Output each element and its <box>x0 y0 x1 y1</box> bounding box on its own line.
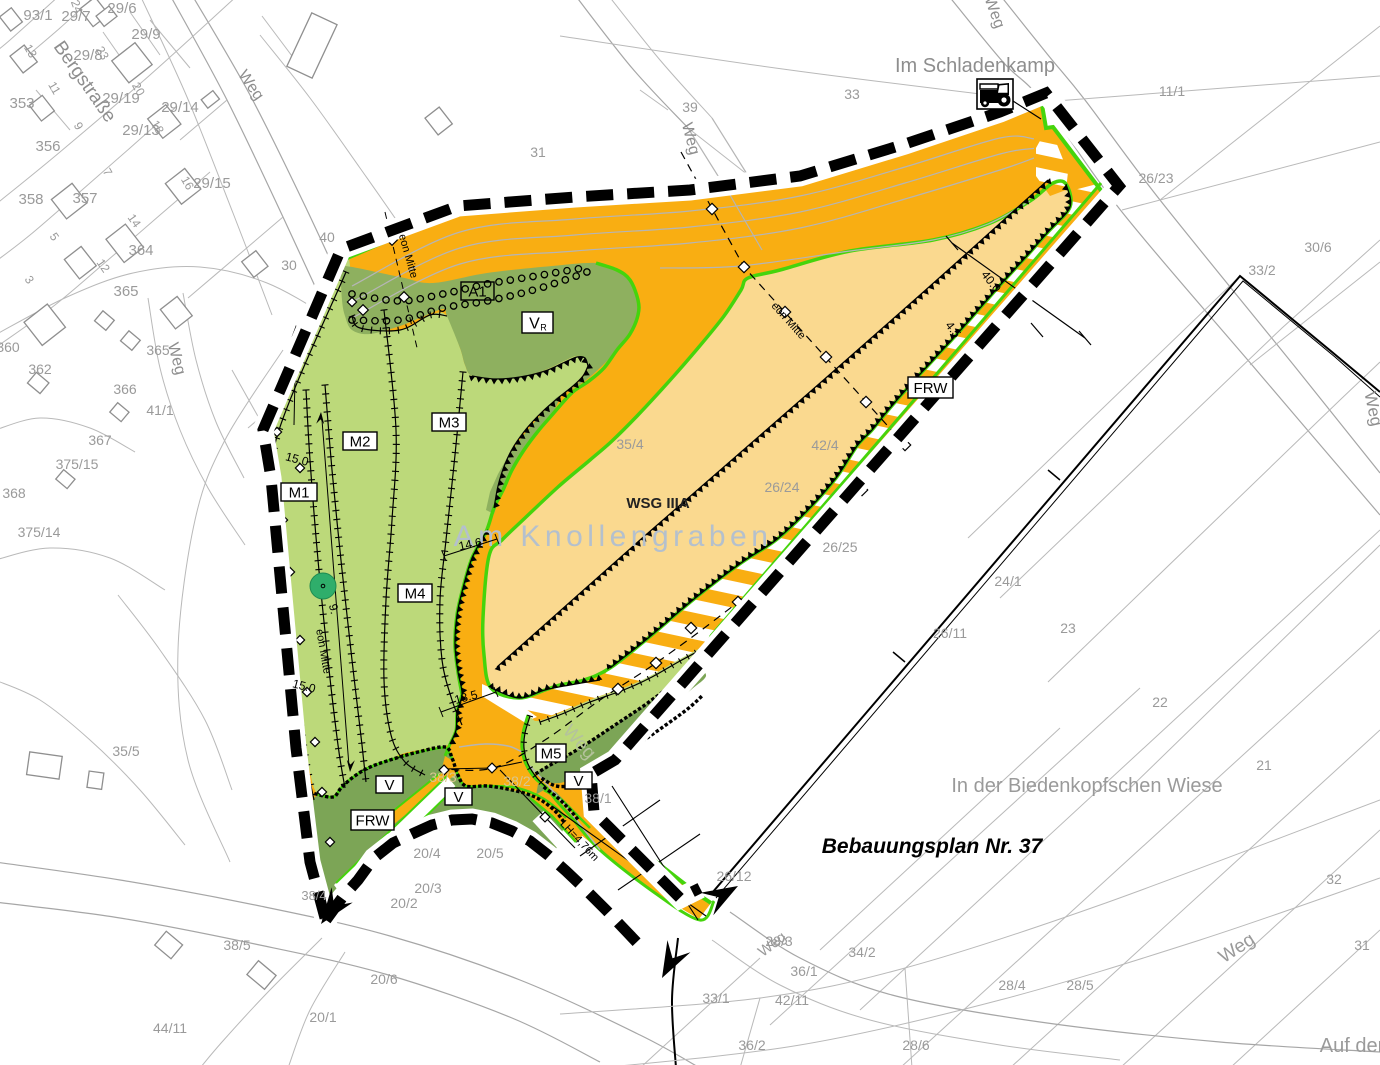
svg-text:93/1: 93/1 <box>23 7 52 24</box>
svg-text:368: 368 <box>2 485 26 501</box>
svg-text:20/3: 20/3 <box>414 880 441 896</box>
svg-text:20/4: 20/4 <box>413 845 440 861</box>
svg-text:38/5: 38/5 <box>223 937 250 953</box>
svg-text:In der Biedenkopfschen Wiese: In der Biedenkopfschen Wiese <box>951 775 1222 797</box>
svg-text:357: 357 <box>72 190 97 207</box>
svg-text:40: 40 <box>319 229 335 245</box>
svg-text:A1: A1 <box>468 283 486 300</box>
svg-text:V: V <box>384 777 394 794</box>
svg-text:22: 22 <box>1152 694 1168 710</box>
svg-text:20/5: 20/5 <box>476 845 503 861</box>
svg-text:V: V <box>453 789 463 806</box>
svg-text:367: 367 <box>88 432 112 448</box>
svg-text:28/6: 28/6 <box>902 1037 929 1053</box>
svg-text:26/25: 26/25 <box>822 539 857 555</box>
svg-text:FRW: FRW <box>356 812 391 829</box>
svg-text:366: 366 <box>113 381 137 397</box>
svg-text:364: 364 <box>128 242 153 259</box>
svg-text:20/1: 20/1 <box>309 1009 336 1025</box>
svg-text:35/5: 35/5 <box>112 743 139 759</box>
svg-text:29/19: 29/19 <box>102 90 140 107</box>
svg-text:356: 356 <box>35 138 60 155</box>
svg-text:28/3: 28/3 <box>765 933 792 949</box>
svg-text:31: 31 <box>1354 937 1370 953</box>
svg-text:28/5: 28/5 <box>1066 977 1093 993</box>
svg-text:36/2: 36/2 <box>738 1037 765 1053</box>
svg-text:32: 32 <box>1326 871 1342 887</box>
svg-text:26/23: 26/23 <box>1138 170 1173 186</box>
svg-text:360: 360 <box>0 339 20 355</box>
svg-text:35/4: 35/4 <box>616 436 643 452</box>
svg-text:23: 23 <box>1060 620 1076 636</box>
svg-text:29/9: 29/9 <box>131 26 160 43</box>
svg-text:M3: M3 <box>439 414 460 431</box>
svg-text:34/2: 34/2 <box>848 944 875 960</box>
svg-text:362: 362 <box>28 361 52 377</box>
svg-text:Im Schladenkamp: Im Schladenkamp <box>895 55 1055 77</box>
svg-text:28/4: 28/4 <box>998 977 1025 993</box>
svg-text:38/3: 38/3 <box>429 769 456 785</box>
svg-text:38/4: 38/4 <box>301 888 326 903</box>
svg-text:375/15: 375/15 <box>56 456 99 472</box>
svg-text:375/14: 375/14 <box>18 524 61 540</box>
svg-text:44/11: 44/11 <box>153 1020 187 1036</box>
svg-text:38/2: 38/2 <box>503 773 530 789</box>
svg-text:26/12: 26/12 <box>716 868 751 884</box>
svg-text:31: 31 <box>530 144 546 160</box>
svg-text:30: 30 <box>281 257 297 273</box>
svg-text:WSG IIIA: WSG IIIA <box>626 495 690 512</box>
svg-text:365: 365 <box>113 283 138 300</box>
svg-text:M2: M2 <box>350 433 371 450</box>
svg-text:M5: M5 <box>541 745 562 762</box>
svg-text:24/1: 24/1 <box>994 573 1021 589</box>
svg-text:M4: M4 <box>405 585 426 602</box>
svg-text:V: V <box>573 773 583 790</box>
svg-text:365: 365 <box>146 342 170 358</box>
svg-text:29/15: 29/15 <box>193 175 231 192</box>
svg-text:Bebauungsplan Nr. 37: Bebauungsplan Nr. 37 <box>822 835 1044 858</box>
svg-text:20/2: 20/2 <box>390 895 417 911</box>
svg-text:26/11: 26/11 <box>933 625 967 641</box>
svg-text:29/7: 29/7 <box>61 8 90 25</box>
svg-text:41/1: 41/1 <box>146 402 173 418</box>
svg-text:R: R <box>540 323 547 333</box>
svg-text:M1: M1 <box>289 484 310 501</box>
svg-text:Am Knollengraben: Am Knollengraben <box>454 520 773 553</box>
svg-text:Auf der: Auf der <box>1320 1035 1380 1057</box>
svg-text:38/1: 38/1 <box>584 790 611 806</box>
svg-text:42/11: 42/11 <box>775 992 809 1008</box>
svg-text:29/6: 29/6 <box>107 0 136 17</box>
svg-text:26/24: 26/24 <box>764 479 799 495</box>
svg-text:33: 33 <box>844 86 860 102</box>
svg-text:FRW: FRW <box>914 380 949 397</box>
svg-text:V: V <box>529 315 540 332</box>
svg-text:33/1: 33/1 <box>702 990 729 1006</box>
svg-text:42/4: 42/4 <box>811 437 838 453</box>
svg-text:33/2: 33/2 <box>1248 262 1275 278</box>
svg-text:20/6: 20/6 <box>370 971 397 987</box>
svg-text:11/1: 11/1 <box>1159 83 1185 99</box>
svg-text:358: 358 <box>18 191 43 208</box>
svg-text:30/6: 30/6 <box>1304 239 1331 255</box>
svg-text:39: 39 <box>682 99 698 115</box>
svg-text:21: 21 <box>1256 757 1272 773</box>
svg-text:29/14: 29/14 <box>161 99 199 116</box>
svg-text:36/1: 36/1 <box>790 963 817 979</box>
svg-text:353: 353 <box>9 95 34 112</box>
